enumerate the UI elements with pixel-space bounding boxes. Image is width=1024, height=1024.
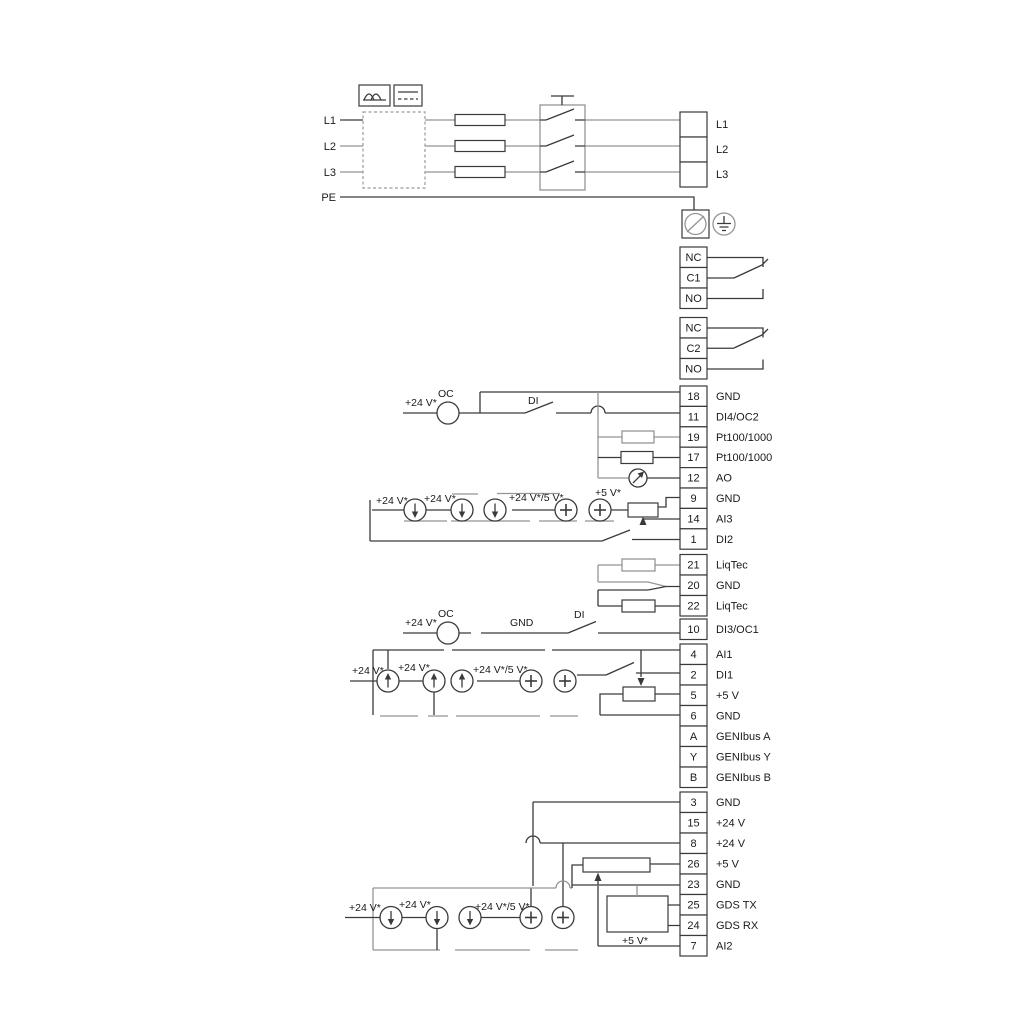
terminal-label: AI1 xyxy=(716,649,733,661)
label-di: DI xyxy=(574,609,585,621)
gds-sensor-box: +5 V* xyxy=(607,885,680,947)
terminal-label: +5 V xyxy=(716,690,740,702)
relay1-no: NO xyxy=(685,293,702,305)
diagram-canvas: L1 L2 L3 PE L1 L2 L3 xyxy=(0,0,1024,1024)
ao-meter-icon xyxy=(598,469,680,487)
terminal-label: DI4/OC2 xyxy=(716,411,759,423)
bottom-section-wiring: +5 V* +24 V* +24 V* +24 V*/5 V* xyxy=(345,802,680,950)
terminal-number: 8 xyxy=(690,838,696,850)
potentiometer-ai1 xyxy=(600,650,680,715)
di1-switch xyxy=(577,663,680,676)
input-label-pe: PE xyxy=(321,192,336,204)
output-label-l1: L1 xyxy=(716,119,728,131)
terminal-number: 17 xyxy=(687,452,699,464)
terminal-number: 25 xyxy=(687,900,699,912)
pe-screw-terminal xyxy=(682,210,709,238)
output-label-l3: L3 xyxy=(716,169,728,181)
resistor-pt100-19 xyxy=(622,431,654,443)
terminal-block-di3: 10 DI3/OC1 xyxy=(680,619,759,640)
terminal-label: GND xyxy=(716,391,741,403)
terminal-number: 6 xyxy=(690,711,696,723)
relay2-nc: NC xyxy=(686,323,702,335)
label-24v: +24 V* xyxy=(405,617,437,629)
fuse-l2 xyxy=(455,141,505,152)
oc-contact-icon xyxy=(437,622,459,644)
input-label-l3: L3 xyxy=(324,167,336,179)
terminal-label: AI2 xyxy=(716,941,733,953)
terminal-number: 11 xyxy=(688,411,699,423)
terminal-number: 1 xyxy=(690,534,696,546)
output-label-l2: L2 xyxy=(716,144,728,156)
label-oc: OC xyxy=(438,608,454,620)
terminal-number: 14 xyxy=(687,513,699,525)
terminal-label: GENIbus Y xyxy=(716,752,771,764)
voltage-source-icon xyxy=(554,670,576,692)
terminal-number: 12 xyxy=(687,473,699,485)
terminal-number: 18 xyxy=(687,391,699,403)
ai3-sensor-options: +24 V* +24 V* +24 V*/5 V* +5 V* xyxy=(370,487,680,541)
input-label-l2: L2 xyxy=(324,141,336,153)
dc-symbol xyxy=(394,85,422,106)
label-di: DI xyxy=(528,395,539,407)
terminal-label: GENIbus B xyxy=(716,772,771,784)
terminal-number: 15 xyxy=(687,818,699,830)
terminal-number: 9 xyxy=(690,493,696,505)
relay2-c2: C2 xyxy=(686,343,700,355)
terminal-number: 26 xyxy=(687,859,699,871)
label-oc: OC xyxy=(438,388,454,400)
current-source-up-icon xyxy=(451,670,473,692)
label-24v-5v: +24 V*/5 V* xyxy=(509,492,564,504)
terminal-label: AO xyxy=(716,473,732,485)
relay2-contact xyxy=(707,328,768,369)
di3-row: +24 V* OC GND DI xyxy=(403,608,680,644)
ai2-sensor-options: +24 V* +24 V* +24 V*/5 V* xyxy=(345,888,578,950)
terminal-number: 21 xyxy=(687,560,699,572)
liqtec-sensor-top xyxy=(622,559,655,571)
terminal-number: 2 xyxy=(690,670,696,682)
terminal-label: +24 V xyxy=(716,838,746,850)
terminal-cell xyxy=(680,137,707,162)
terminal-label: GND xyxy=(716,797,741,809)
terminal-number: 23 xyxy=(687,879,699,891)
terminal-number: B xyxy=(690,772,697,784)
ai1-sensor-options: +24 V* +24 V* +24 V*/5 V* xyxy=(350,650,680,716)
terminal-label: DI3/OC1 xyxy=(716,624,759,636)
terminal-label: GDS TX xyxy=(716,900,757,912)
terminal-label: GND xyxy=(716,879,741,891)
label-24v: +24 V* xyxy=(405,397,437,409)
terminal-number: A xyxy=(690,731,698,743)
label-24v: +24 V* xyxy=(376,495,408,507)
terminal-number: 7 xyxy=(690,941,696,953)
resistor-pt100-17 xyxy=(621,452,653,464)
terminal-block-io-top: 18 11 19 17 12 9 14 1 GND DI4/OC2 Pt100/… xyxy=(680,386,772,549)
fuse-l3 xyxy=(455,167,505,178)
io-top-wiring: +24 V* OC DI xyxy=(403,388,680,487)
terminal-number: 3 xyxy=(690,797,696,809)
terminal-label: Pt100/1000 xyxy=(716,452,772,464)
terminal-label: GND xyxy=(716,493,741,505)
terminal-block-io-mid: 4 2 5 6 A Y B AI1 DI1 +5 V GND GENIbus A… xyxy=(680,644,771,788)
terminal-number: 19 xyxy=(687,432,699,444)
terminal-block-io-bottom: 3 15 8 26 23 25 24 7 GND +24 V +24 V +5 … xyxy=(680,792,759,956)
terminal-label: GND xyxy=(716,580,741,592)
mains-terminal-block: L1 L2 L3 xyxy=(680,112,728,187)
terminal-number: 22 xyxy=(687,601,699,613)
label-24v: +24 V* xyxy=(349,902,381,914)
terminal-cell xyxy=(680,162,707,187)
terminal-number: 10 xyxy=(687,624,699,636)
terminal-label: DI1 xyxy=(716,670,733,682)
terminal-number: 5 xyxy=(690,690,696,702)
label-gnd: GND xyxy=(510,617,534,629)
power-section: L1 L2 L3 PE L1 L2 L3 xyxy=(321,85,735,238)
terminal-block-liqtec: 21 20 22 LiqTec GND LiqTec xyxy=(680,555,748,617)
terminal-label: LiqTec xyxy=(716,560,748,572)
label-24v-5v: +24 V*/5 V* xyxy=(473,664,528,676)
terminal-label: LiqTec xyxy=(716,601,748,613)
terminal-number: Y xyxy=(690,752,698,764)
liqtec-wiring xyxy=(598,559,680,612)
relay2-block: NC C2 NO xyxy=(680,318,768,380)
power-wires xyxy=(340,120,694,210)
terminal-number: 4 xyxy=(690,649,696,661)
di2-switch xyxy=(370,530,680,541)
relay1-c1: C1 xyxy=(686,273,700,285)
ac-symbol xyxy=(359,85,390,106)
main-switch xyxy=(540,96,585,190)
terminal-label: AI3 xyxy=(716,513,733,525)
voltage-source-icon xyxy=(589,499,611,521)
label-24v: +24 V* xyxy=(398,662,430,674)
current-source-down-icon xyxy=(484,499,506,521)
voltage-source-icon xyxy=(552,907,574,929)
label-5v: +5 V* xyxy=(622,935,648,947)
relay1-block: NC C1 NO xyxy=(680,247,768,309)
terminal-label: Pt100/1000 xyxy=(716,432,772,444)
input-label-l1: L1 xyxy=(324,115,336,127)
fuse-l1 xyxy=(455,115,505,126)
potentiometer-ai3 xyxy=(628,498,680,526)
liqtec-sensor-bottom xyxy=(622,600,655,612)
oc-contact-icon xyxy=(437,402,459,424)
relay1-contact xyxy=(707,258,768,299)
terminal-label: +5 V xyxy=(716,859,740,871)
relay2-no: NO xyxy=(685,364,702,376)
wiring-diagram: L1 L2 L3 PE L1 L2 L3 xyxy=(0,0,1024,1024)
potentiometer-ai2 xyxy=(572,858,680,888)
label-24v: +24 V* xyxy=(424,493,456,505)
earth-ground-icon xyxy=(713,213,735,235)
label-24v: +24 V* xyxy=(352,665,384,677)
relay1-nc: NC xyxy=(686,252,702,264)
terminal-label: GDS RX xyxy=(716,920,759,932)
terminal-number: 24 xyxy=(687,920,699,932)
terminal-label: DI2 xyxy=(716,534,733,546)
terminal-label: +24 V xyxy=(716,818,746,830)
terminal-cell xyxy=(680,112,707,137)
filter-box xyxy=(363,112,425,188)
terminal-label: GND xyxy=(716,711,741,723)
terminal-number: 20 xyxy=(687,580,699,592)
terminal-label: GENIbus A xyxy=(716,731,771,743)
label-24v: +24 V* xyxy=(399,899,431,911)
label-24v-5v: +24 V*/5 V* xyxy=(475,901,530,913)
label-5v: +5 V* xyxy=(595,487,621,499)
